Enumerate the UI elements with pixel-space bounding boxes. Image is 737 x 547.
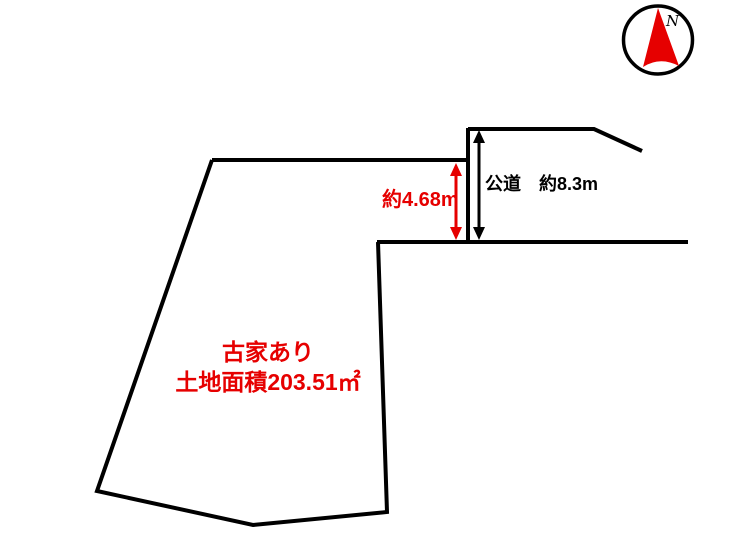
arrow-up-head (450, 163, 462, 176)
road-dimension-label: 公道 約8.3m (485, 175, 598, 195)
road-width-dimension-arrow (473, 130, 485, 240)
arrow-up-head (473, 130, 485, 143)
land-plot-diagram: N 約4.68m 公道 約8.3m 古家あり 土地面積203.51㎡ (0, 0, 737, 547)
plot-caption-line1: 古家あり (145, 337, 391, 367)
plot-caption-line2: 土地面積203.51㎡ (145, 367, 391, 397)
diagram-canvas: N (0, 0, 737, 547)
compass-north-label: N (665, 12, 680, 30)
arrow-down-head (473, 227, 485, 240)
road-top-edge (468, 129, 642, 151)
compass-icon: N (624, 6, 693, 74)
plot-caption: 古家あり 土地面積203.51㎡ (145, 337, 391, 397)
arrow-down-head (450, 227, 462, 240)
frontage-dimension-label: 約4.68m (382, 189, 459, 211)
